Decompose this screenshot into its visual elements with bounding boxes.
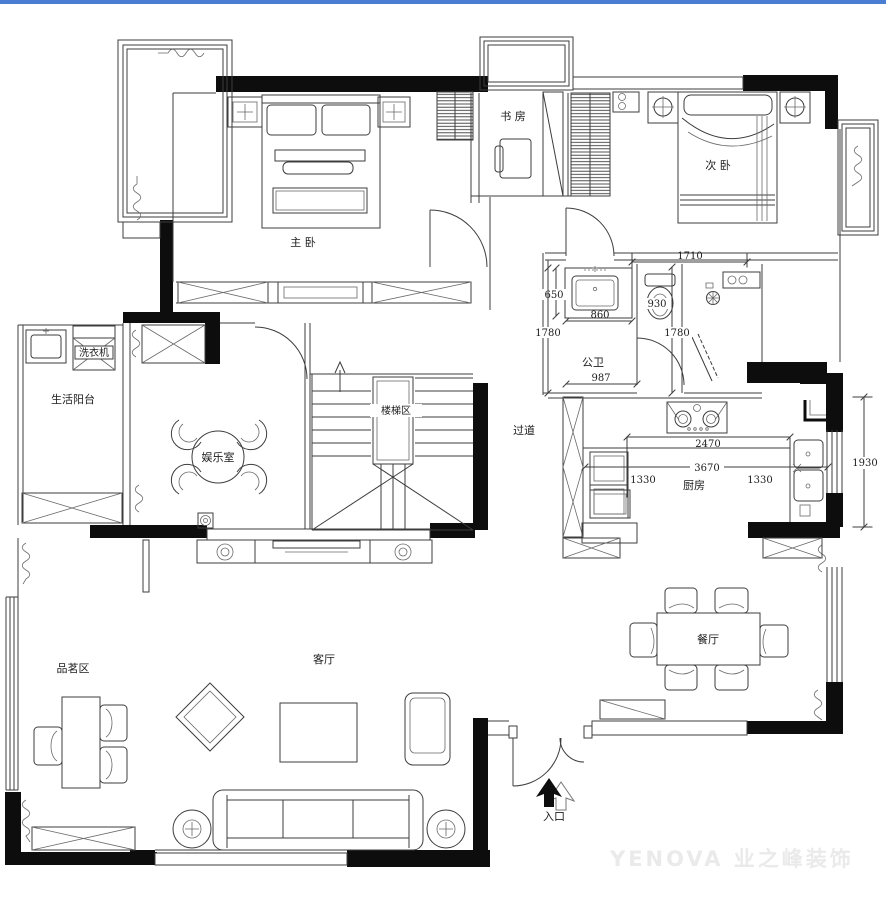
svg-text:2470: 2470 bbox=[695, 439, 720, 450]
bathroom-door bbox=[637, 338, 684, 385]
dim-650: 650 bbox=[541, 265, 567, 319]
top-blue-bar bbox=[0, 0, 886, 4]
chair bbox=[171, 464, 201, 494]
staircase: 楼梯区 bbox=[310, 362, 473, 530]
room-label-bathroom: 公卫 bbox=[582, 356, 604, 369]
shower-counter bbox=[723, 272, 760, 288]
fridge bbox=[590, 452, 628, 518]
desk-chair bbox=[495, 146, 503, 172]
tv-cabinet bbox=[197, 540, 432, 563]
room-label-corridor: 过道 bbox=[513, 423, 535, 437]
entry-arrow-icon bbox=[536, 778, 562, 807]
bay-window-top-left bbox=[118, 40, 232, 238]
counter-cabinet bbox=[582, 523, 637, 543]
stove bbox=[667, 402, 727, 433]
dim-1930: 1930 bbox=[849, 394, 880, 530]
nightstand bbox=[780, 92, 810, 123]
curtain-squiggle-icon bbox=[814, 690, 822, 720]
room-label-entertainment: 娱乐室 bbox=[202, 450, 235, 464]
window-kitchen-right bbox=[827, 430, 842, 493]
room-label-kitchen: 厨房 bbox=[683, 479, 705, 492]
chair bbox=[630, 623, 657, 657]
study: 书 房 bbox=[495, 110, 531, 178]
chair bbox=[715, 665, 748, 690]
living-balcony: 洗衣机 生活阳台 bbox=[22, 326, 122, 523]
room-label-staircase: 楼梯区 bbox=[381, 404, 411, 417]
single-bed bbox=[678, 92, 777, 223]
decor-plant-icon bbox=[395, 544, 411, 560]
tea-table bbox=[62, 697, 100, 788]
small-cabinet bbox=[613, 92, 639, 112]
curtain-squiggle-icon bbox=[158, 49, 204, 57]
entertainment-room: 娱乐室 bbox=[142, 325, 267, 528]
shower-sliding-door bbox=[692, 334, 718, 381]
svg-text:650: 650 bbox=[544, 290, 563, 301]
chair bbox=[100, 705, 127, 741]
room-label-tea-area: 品茗区 bbox=[57, 662, 90, 675]
bay-window-right bbox=[838, 120, 878, 235]
shoe-cabinet bbox=[600, 700, 665, 719]
armchair bbox=[405, 693, 450, 765]
bed-bench bbox=[273, 188, 367, 213]
room-label-dining: 餐厅 bbox=[697, 632, 719, 646]
nightstand bbox=[648, 92, 678, 123]
dining-room: 餐厅 bbox=[600, 588, 788, 719]
accent-chair bbox=[176, 683, 244, 751]
side-table bbox=[427, 810, 465, 848]
curtain-squiggle-icon bbox=[132, 330, 140, 357]
chair bbox=[100, 747, 127, 783]
kitchen-sink bbox=[793, 440, 823, 516]
floorplan-stage: 主 卧 书 房 bbox=[0, 0, 886, 900]
chair bbox=[171, 420, 201, 450]
master-bedroom-door bbox=[430, 210, 487, 267]
chair bbox=[34, 727, 62, 765]
tall-cabinet bbox=[563, 397, 583, 537]
sideboard-left bbox=[563, 538, 620, 558]
sofa bbox=[213, 790, 423, 850]
svg-text:1330: 1330 bbox=[630, 475, 655, 486]
room-label-second-bedroom: 次 卧 bbox=[705, 158, 731, 172]
side-table bbox=[173, 810, 211, 848]
room-label-living-room: 客厅 bbox=[313, 652, 335, 666]
svg-text:1710: 1710 bbox=[677, 251, 702, 262]
curtain-squiggle-icon bbox=[22, 543, 30, 584]
laundry-sink bbox=[26, 328, 66, 363]
label-entrance: 入口 bbox=[543, 810, 565, 823]
svg-text:1330: 1330 bbox=[747, 475, 772, 486]
label-washing-machine: 洗衣机 bbox=[79, 346, 109, 359]
corner-guard bbox=[805, 400, 826, 420]
svg-text:1780: 1780 bbox=[664, 328, 689, 339]
dim-1780-right: 1780 bbox=[663, 264, 692, 396]
floorplan-svg: 主 卧 书 房 bbox=[0, 0, 886, 900]
svg-text:860: 860 bbox=[590, 310, 609, 321]
curtain-squiggle-icon bbox=[852, 146, 862, 186]
cabinet bbox=[32, 827, 135, 850]
second-bedroom: 次 卧 bbox=[571, 92, 810, 223]
living-room: 客厅 bbox=[173, 540, 465, 850]
double-bed bbox=[262, 95, 380, 228]
curtain-squiggle-icon bbox=[135, 485, 143, 512]
bay-window-study bbox=[480, 37, 573, 90]
chair bbox=[715, 588, 748, 613]
entertainment-room-door bbox=[255, 327, 307, 379]
coffee-table bbox=[280, 703, 357, 762]
washing-machine: 洗衣机 bbox=[73, 326, 115, 370]
chair bbox=[665, 588, 697, 613]
svg-text:1930: 1930 bbox=[852, 458, 877, 469]
up-arrow-icon bbox=[335, 362, 345, 392]
tea-area: 品茗区 bbox=[32, 662, 135, 850]
svg-text:1780: 1780 bbox=[535, 328, 560, 339]
cabinet bbox=[142, 325, 205, 363]
entrance: 入口 bbox=[536, 778, 574, 823]
svg-text:930: 930 bbox=[647, 299, 666, 310]
room-label-master-bedroom: 主 卧 bbox=[290, 236, 316, 249]
curtain-squiggle-icon bbox=[22, 800, 30, 842]
tv bbox=[273, 541, 360, 548]
chair bbox=[665, 665, 697, 690]
nightstand bbox=[228, 97, 262, 127]
master-bedroom: 主 卧 bbox=[178, 92, 473, 303]
dim-930: 930 bbox=[645, 298, 669, 310]
dim-987: 987 bbox=[563, 373, 640, 387]
room-label-study: 书 房 bbox=[500, 110, 526, 123]
shower-head-icon bbox=[706, 283, 720, 305]
toilet bbox=[645, 274, 675, 319]
dim-860: 860 bbox=[563, 310, 635, 324]
balcony-cabinet bbox=[22, 493, 122, 523]
dim-1780-left: 1780 bbox=[534, 265, 563, 396]
chair bbox=[760, 625, 788, 657]
sideboard-right bbox=[763, 538, 822, 558]
brand-watermark: YENOVA 业之峰装饰 bbox=[609, 847, 854, 871]
svg-text:3670: 3670 bbox=[694, 463, 719, 474]
svg-text:987: 987 bbox=[591, 373, 610, 384]
second-bedroom-door bbox=[566, 208, 614, 256]
decor-plant-icon bbox=[217, 544, 233, 560]
entrance-door bbox=[509, 726, 592, 786]
desk bbox=[500, 139, 531, 178]
closet-row bbox=[178, 282, 471, 303]
study-closet-door bbox=[543, 92, 563, 196]
room-label-balcony: 生活阳台 bbox=[51, 392, 95, 406]
nightstand bbox=[378, 97, 410, 127]
stair-void bbox=[373, 377, 413, 464]
